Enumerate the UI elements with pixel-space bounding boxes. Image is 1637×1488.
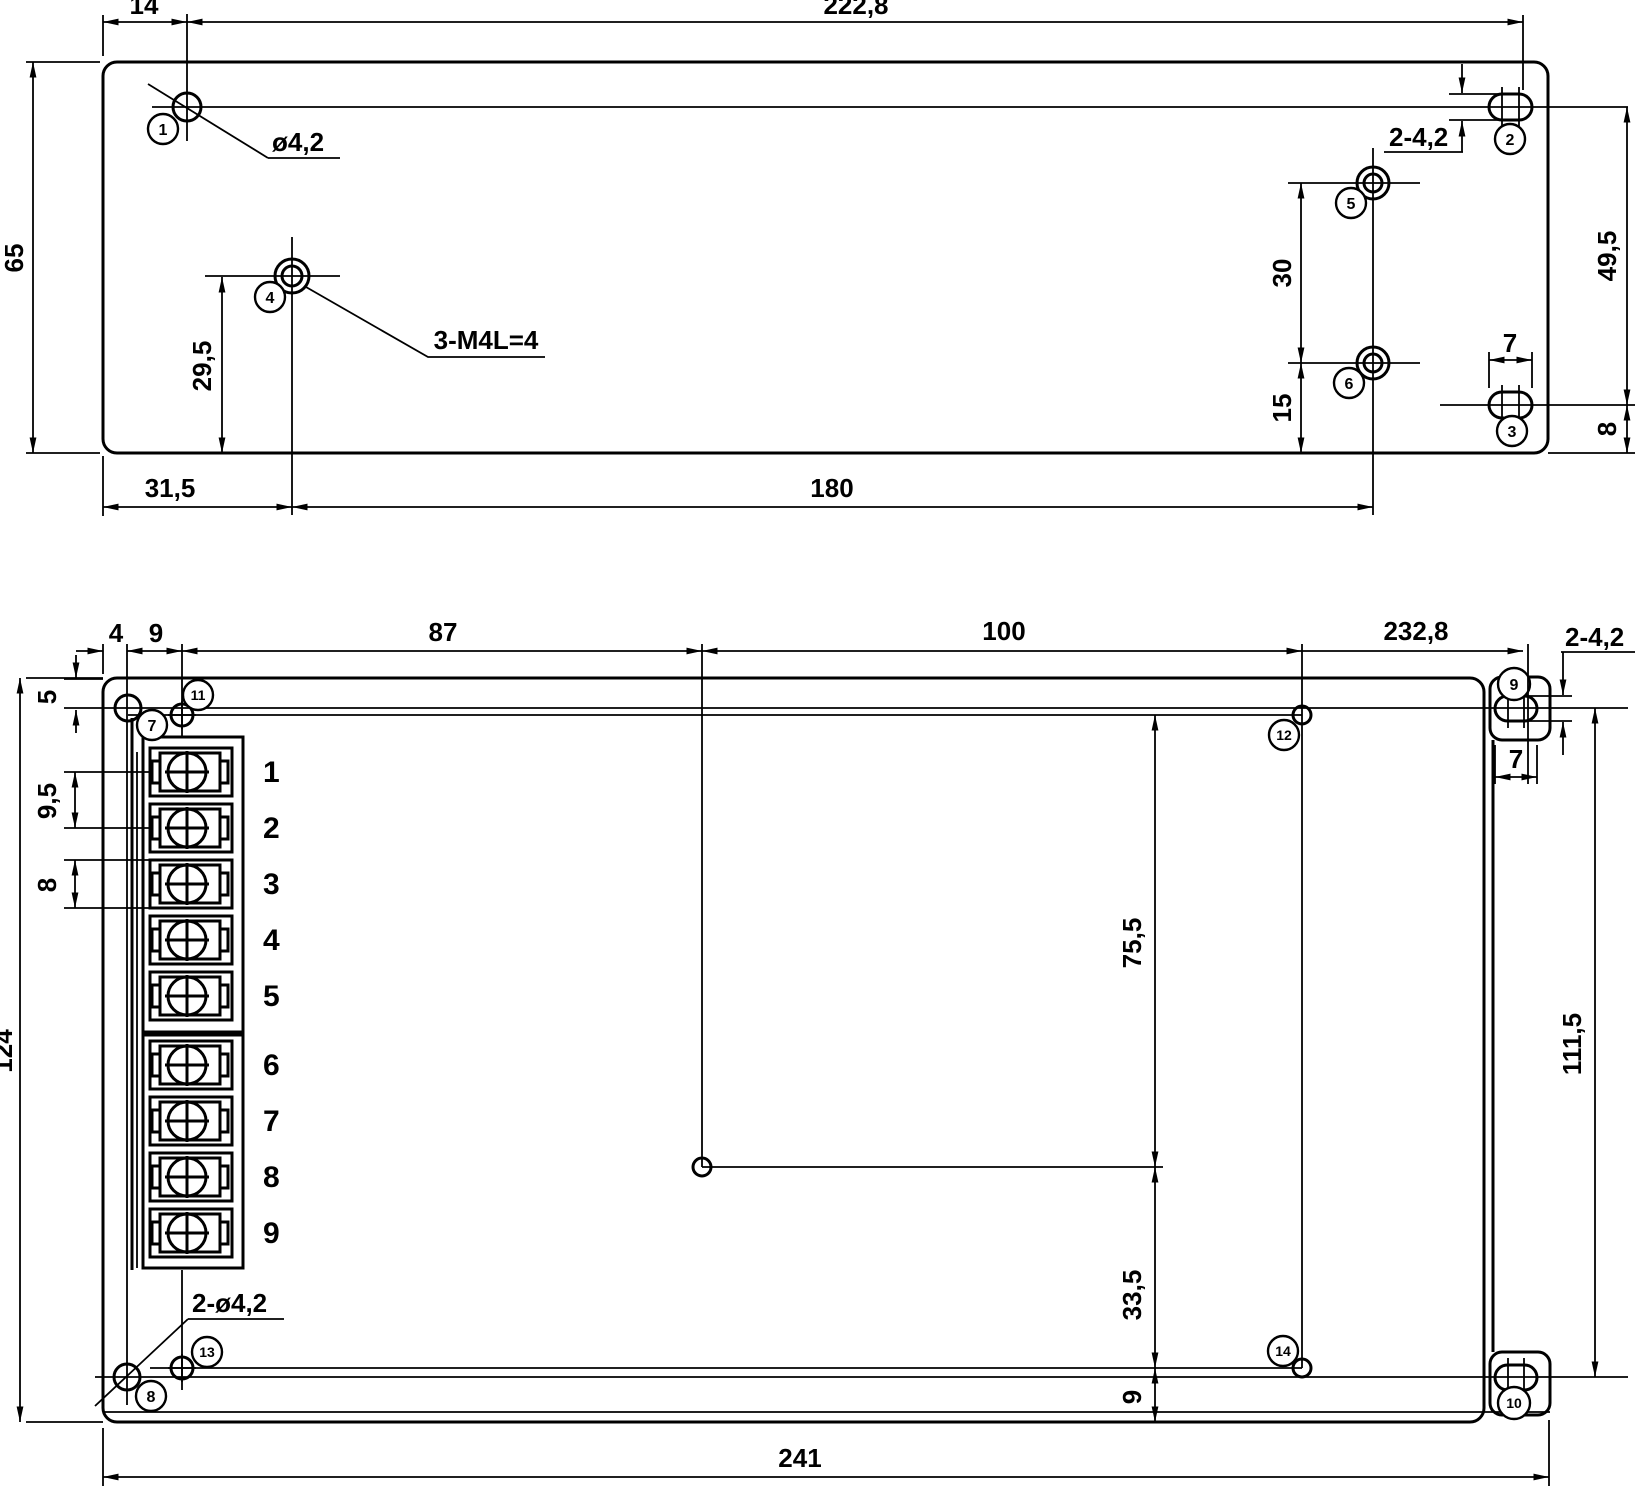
dim-29-5: 29,5 — [187, 341, 217, 392]
terminal-label: 5 — [263, 980, 280, 1013]
terminal-label: 7 — [263, 1105, 280, 1138]
svg-text:8: 8 — [147, 1389, 156, 1406]
svg-text:1: 1 — [159, 122, 168, 139]
svg-text:6: 6 — [1345, 376, 1354, 393]
dim-75-5: 75,5 — [1117, 918, 1147, 969]
top-view-outline — [103, 62, 1548, 453]
dim-8-top: 8 — [1592, 422, 1622, 436]
terminal-label: 2 — [263, 812, 280, 845]
svg-text:7: 7 — [148, 718, 157, 735]
hole-diameter-note: ø4,2 — [272, 127, 324, 157]
terminal-label: 4 — [263, 924, 280, 957]
dim-30: 30 — [1267, 259, 1297, 288]
dim-124: 124 — [0, 1029, 18, 1073]
dim-232-8: 232,8 — [1383, 616, 1448, 646]
bottom-view-outline — [103, 678, 1484, 1422]
terminal-screw — [152, 807, 228, 849]
dim-9: 9 — [149, 618, 163, 648]
corner-holes-note: 2-ø4,2 — [192, 1288, 267, 1318]
technical-drawing-page: ø4,2 1 4 3-M4L=4 5 6 2 2-4,2 — [0, 0, 1637, 1488]
dim-222-8: 222,8 — [823, 0, 888, 20]
svg-text:5: 5 — [1347, 196, 1356, 213]
terminal-screw — [152, 1156, 228, 1198]
slot-size-note-bottom: 2-4,2 — [1565, 622, 1624, 652]
dim-15: 15 — [1267, 394, 1297, 423]
terminal-screw — [152, 1100, 228, 1142]
terminal-label: 6 — [263, 1049, 280, 1082]
dim-49-5: 49,5 — [1592, 231, 1622, 282]
terminal-label: 9 — [263, 1217, 280, 1250]
dim-33-5: 33,5 — [1117, 1270, 1147, 1321]
svg-text:3: 3 — [1508, 424, 1517, 441]
dim-5: 5 — [32, 690, 62, 704]
terminal-screw — [152, 919, 228, 961]
dim-9-vertical: 9 — [1117, 1390, 1147, 1404]
svg-text:11: 11 — [191, 687, 206, 703]
terminal-block: 1 2 3 4 5 6 7 8 9 — [132, 718, 280, 1270]
dim-14: 14 — [130, 0, 159, 20]
terminal-screw — [152, 1212, 228, 1254]
terminal-screw — [152, 863, 228, 905]
slot-size-note: 2-4,2 — [1389, 122, 1448, 152]
dim-87: 87 — [429, 617, 458, 647]
dim-7-bottom: 7 — [1509, 744, 1523, 774]
terminal-screw — [152, 1044, 228, 1086]
svg-text:2: 2 — [1506, 132, 1515, 149]
dim-111-5: 111,5 — [1557, 1013, 1587, 1075]
terminal-label: 3 — [263, 868, 280, 901]
top-view: ø4,2 1 4 3-M4L=4 5 6 2 2-4,2 — [0, 0, 1635, 516]
dim-180: 180 — [810, 473, 853, 503]
dim-9-5: 9,5 — [32, 783, 62, 819]
svg-text:9: 9 — [1510, 677, 1519, 694]
dim-7-top: 7 — [1503, 328, 1517, 358]
svg-text:14: 14 — [1275, 1343, 1291, 1359]
svg-text:4: 4 — [266, 290, 275, 307]
dim-100: 100 — [982, 616, 1025, 646]
terminal-screw — [152, 975, 228, 1017]
terminal-label: 1 — [263, 756, 280, 789]
dimension-drawing-canvas: ø4,2 1 4 3-M4L=4 5 6 2 2-4,2 — [0, 0, 1637, 1488]
dim-241: 241 — [778, 1443, 821, 1473]
dim-8-bottom: 8 — [32, 878, 62, 892]
terminal-label: 8 — [263, 1161, 280, 1194]
dim-4: 4 — [109, 618, 124, 648]
dim-65: 65 — [0, 244, 29, 273]
svg-text:13: 13 — [199, 1344, 215, 1360]
dim-31-5: 31,5 — [145, 473, 196, 503]
svg-text:12: 12 — [1276, 727, 1292, 743]
tap-note: 3-M4L=4 — [434, 325, 539, 355]
bottom-view: 9 10 2-4,2 7 4 9 87 100 232,8 — [0, 616, 1635, 1486]
terminal-screw — [152, 751, 228, 793]
svg-text:10: 10 — [1506, 1395, 1522, 1411]
